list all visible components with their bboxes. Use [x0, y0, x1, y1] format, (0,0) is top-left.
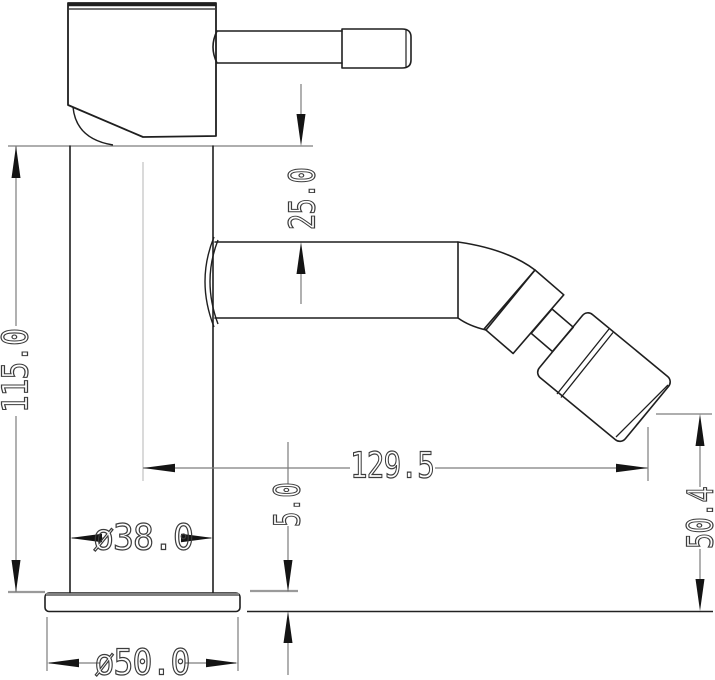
- arrowhead-down-icon: [284, 560, 293, 592]
- arrowhead-up-icon: [297, 242, 306, 274]
- lever-shaft: [213, 31, 342, 63]
- spout-collar: [484, 270, 563, 353]
- arrowhead-down-icon: [297, 114, 306, 146]
- arrowhead-up-icon: [12, 146, 21, 178]
- spout-tube: [215, 242, 458, 318]
- dim-label-overall-height: 115.0: [0, 329, 37, 413]
- handle-pivot-arc: [73, 107, 113, 145]
- dim-label-top-to-spout: 25.0: [283, 168, 324, 230]
- arrowhead-down-icon: [696, 579, 705, 611]
- arrowhead-left-icon: [143, 464, 175, 472]
- aerator-ring-lines: [557, 329, 613, 398]
- handle-lever: [213, 29, 411, 68]
- knurled-grip: [342, 29, 411, 68]
- dim-label-base-thickness: 5.0: [268, 483, 309, 527]
- spout-bend: [458, 242, 535, 330]
- dim-label-outlet-height: 50.4: [681, 487, 715, 549]
- dim-label-base-diameter: ø50.0: [95, 643, 190, 680]
- drawing-canvas: 115.0 25.0 129.5 50.4 5.0 ø38.0 ø50.0: [0, 0, 715, 680]
- dimension-labels: 115.0 25.0 129.5 50.4 5.0 ø38.0 ø50.0: [0, 168, 715, 680]
- faucet-technical-drawing: 115.0 25.0 129.5 50.4 5.0 ø38.0 ø50.0: [0, 0, 715, 680]
- arrowhead-left-icon: [47, 659, 79, 667]
- dimension-lines: [12, 84, 713, 675]
- spout-neck: [531, 309, 573, 352]
- aerator-head: [535, 310, 673, 444]
- dim-label-spout-reach: 129.5: [350, 446, 434, 487]
- arrowhead-up-icon: [284, 611, 293, 643]
- arrowhead-down-icon: [12, 560, 21, 592]
- arrowhead-right-icon: [616, 464, 648, 472]
- dim-label-body-diameter: ø38.0: [93, 518, 193, 559]
- spout-fillet-arcs: [205, 237, 218, 327]
- arrowhead-up-icon: [696, 414, 705, 446]
- aerator-tip-line: [616, 385, 668, 437]
- handle-cap: [68, 3, 216, 137]
- arrowhead-right-icon: [206, 659, 238, 667]
